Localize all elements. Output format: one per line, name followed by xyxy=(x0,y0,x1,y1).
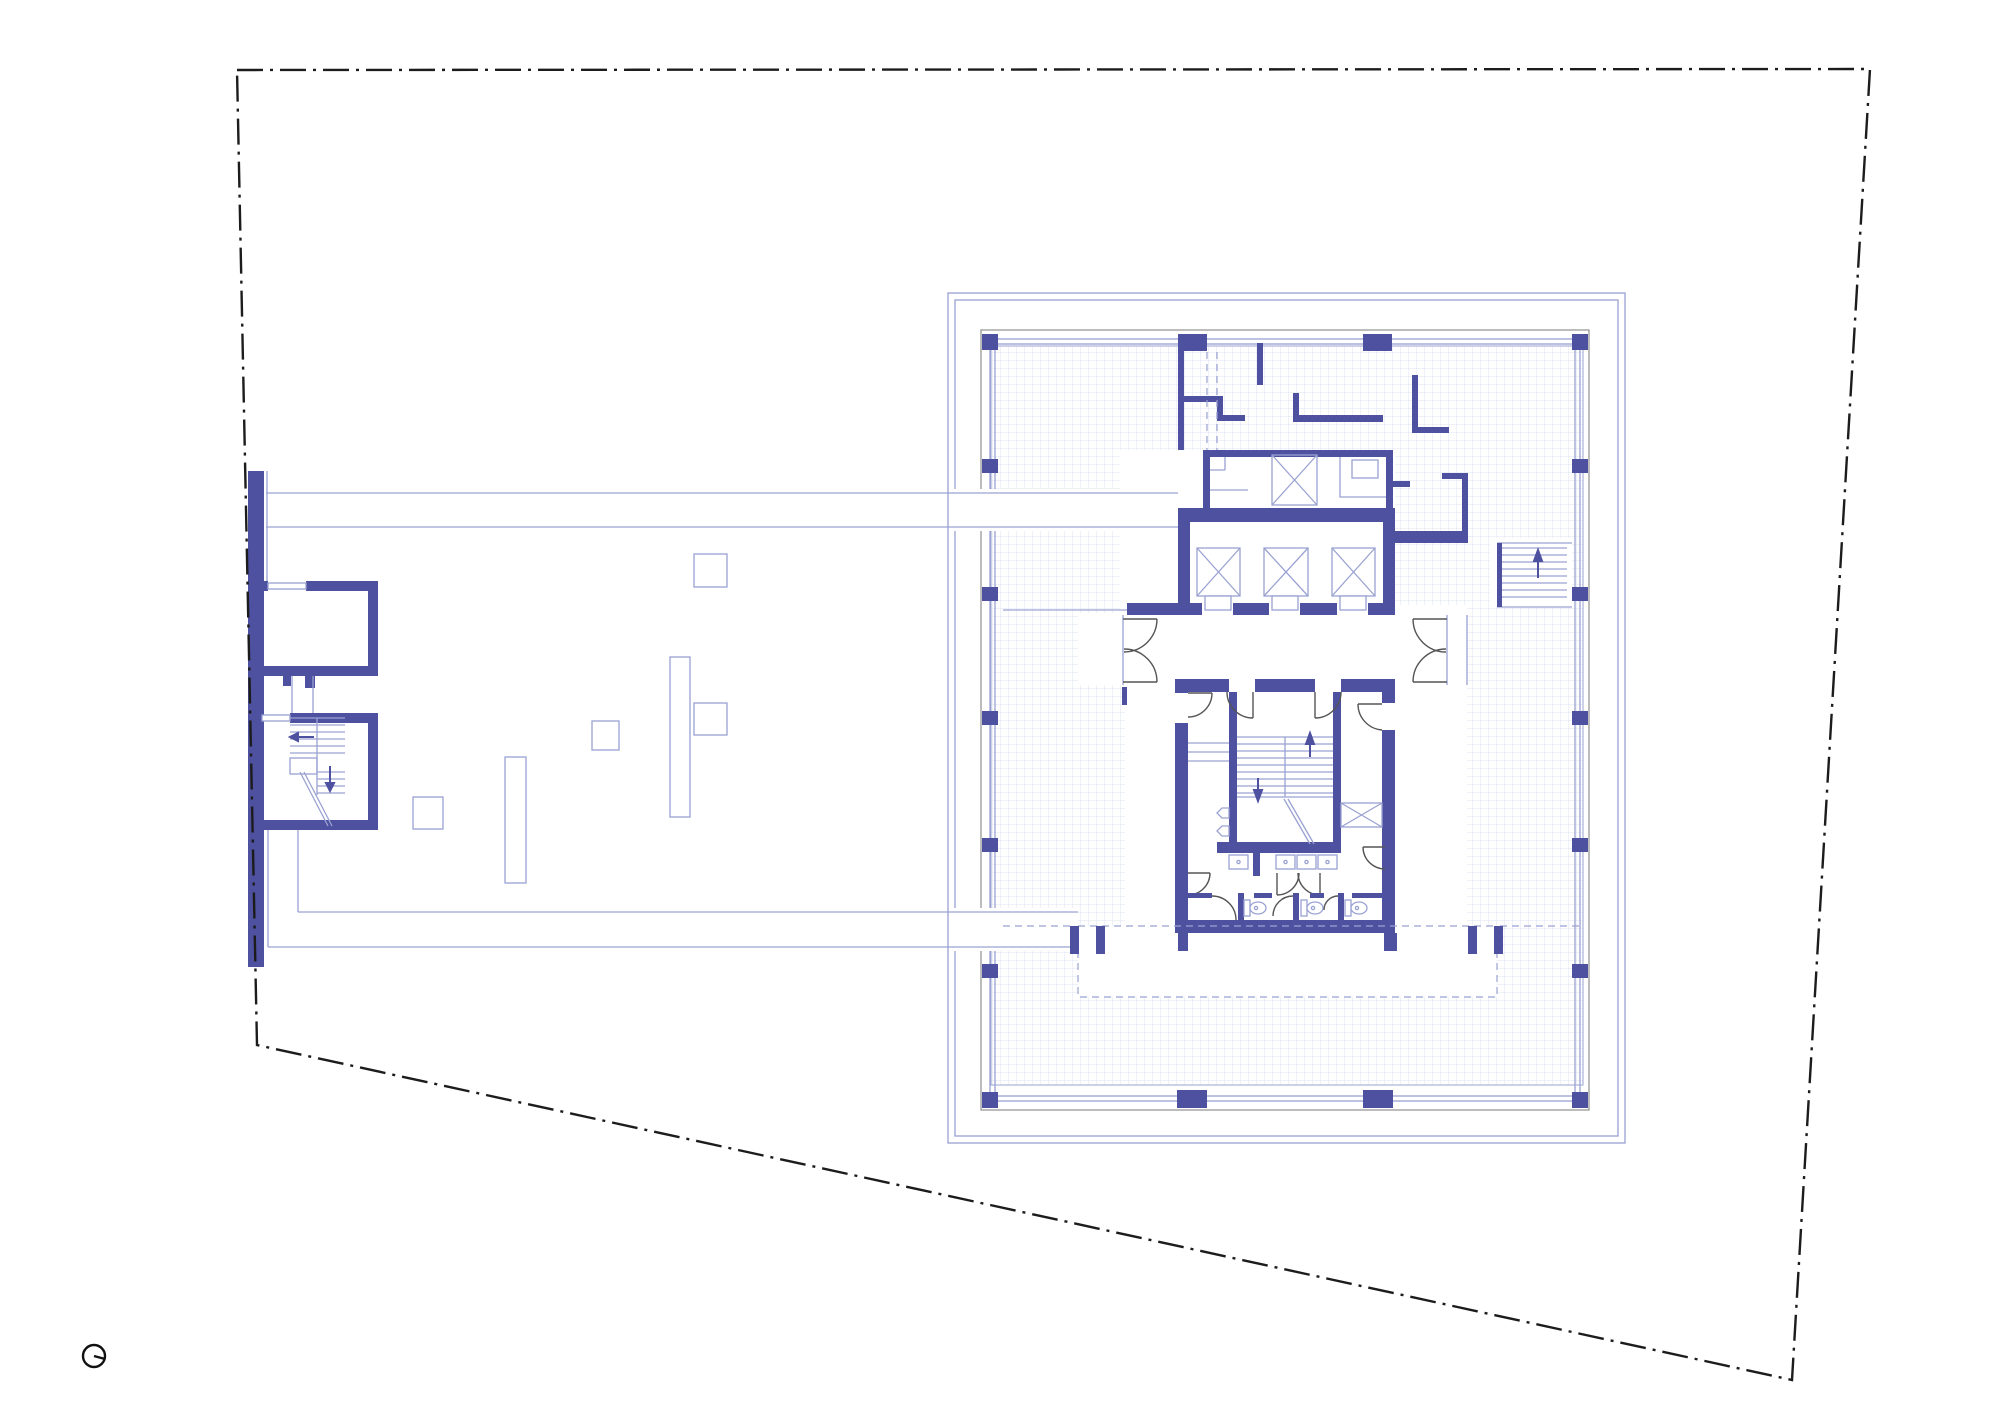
column xyxy=(1572,587,1588,601)
column xyxy=(1572,838,1588,852)
podium-band-top xyxy=(949,489,1178,531)
washbasin xyxy=(1276,855,1295,869)
column xyxy=(1572,459,1588,473)
drawing-sheet xyxy=(0,0,2000,1415)
column xyxy=(982,1092,998,1108)
door-leaf xyxy=(268,583,306,589)
washbasin xyxy=(1297,855,1316,869)
washbasin xyxy=(1318,855,1337,869)
column xyxy=(1572,334,1588,350)
column xyxy=(1572,711,1588,725)
north-arrow-icon xyxy=(83,1345,105,1367)
column xyxy=(1572,964,1588,978)
plant-room xyxy=(248,581,378,713)
podium-stair-room xyxy=(248,713,378,830)
podium-band-bottom xyxy=(949,908,1078,951)
column xyxy=(982,587,998,601)
column xyxy=(1572,1092,1588,1108)
column xyxy=(1177,1090,1207,1108)
washbasin xyxy=(1229,855,1248,869)
column xyxy=(1363,1090,1393,1108)
rooflight xyxy=(592,721,619,750)
column xyxy=(982,711,998,725)
floor-plan-drawing xyxy=(0,0,2000,1415)
door-leaf xyxy=(262,715,290,721)
column xyxy=(982,459,998,473)
column xyxy=(982,334,998,350)
rooflight xyxy=(505,757,526,883)
rooflight xyxy=(413,797,443,829)
column xyxy=(982,964,998,978)
rooflight xyxy=(694,554,727,587)
stair-direction-arrows xyxy=(290,733,334,791)
tower-floor-plan xyxy=(948,293,1625,1143)
rooflights xyxy=(413,554,727,883)
column xyxy=(1363,334,1392,351)
column xyxy=(982,838,998,852)
washbasins xyxy=(1229,855,1337,869)
rooflight xyxy=(694,703,727,735)
rooflight xyxy=(670,657,690,817)
